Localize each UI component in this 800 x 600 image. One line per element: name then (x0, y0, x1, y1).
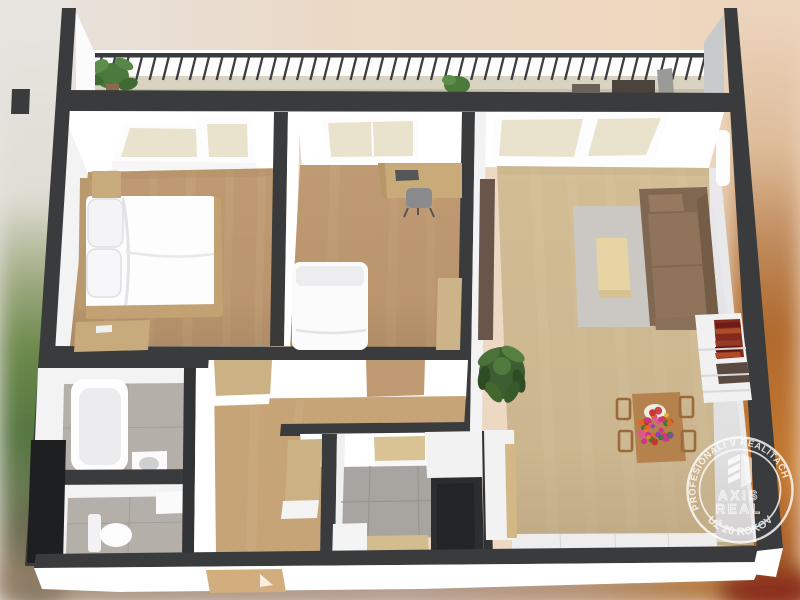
svg-text:REAL: REAL (715, 502, 762, 517)
